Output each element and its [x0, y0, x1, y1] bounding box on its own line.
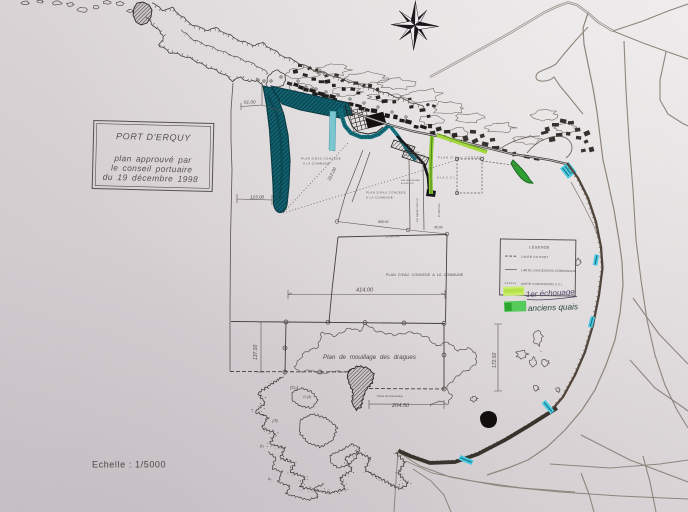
svg-text:LIMITE CONCESSION COMMUNALE: LIMITE CONCESSION COMMUNALE [521, 268, 576, 273]
svg-text:A LA C.C.I.: A LA C.C.I. [437, 176, 456, 180]
svg-text:LEGENDE: LEGENDE [529, 245, 550, 249]
svg-text:(ℛ): (ℛ) [272, 418, 279, 423]
svg-text:PLAN D'EAU CONCEDE A LA C: PLAN D'EAU CONCEDE A LA COMMUNE [386, 273, 464, 277]
svg-text:Pointe de la Heussaye: Pointe de la Heussaye [377, 394, 404, 398]
svg-text:204.50: 204.50 [391, 403, 410, 409]
svg-text:PLAN D'EAU CONCEDE: PLAN D'EAU CONCEDE [301, 157, 341, 161]
svg-text:PORT D'ERQUY: PORT D'ERQUY [116, 131, 191, 143]
svg-text:45.00: 45.00 [434, 226, 443, 230]
svg-text:(G₃): (G₃) [290, 385, 299, 390]
svg-text:A COEF. 120: A COEF. 120 [401, 182, 414, 185]
svg-text:CHENAL: CHENAL [386, 234, 401, 239]
svg-text:123.00: 123.00 [250, 195, 264, 200]
svg-text:β₃: β₃ [259, 443, 264, 448]
svg-text:LIMITE CONCESSION C.C.I: LIMITE CONCESSION C.C.I [521, 282, 563, 287]
svg-text:anciens quais: anciens quais [528, 302, 578, 313]
svg-text:G.(3): G.(3) [303, 395, 311, 399]
svg-text:LIMITE DU PORT: LIMITE DU PORT [521, 255, 548, 259]
svg-text:A LA COMMUNE: A LA COMMUNE [366, 196, 393, 200]
svg-text:414.00: 414.00 [356, 288, 374, 294]
svg-text:Echelle : 1/5000: Echelle : 1/5000 [92, 460, 166, 470]
svg-text:B.M. DE MAREE: B.M. DE MAREE [403, 151, 420, 154]
svg-text:B.M. MAREE COEF 120: B.M. MAREE COEF 120 [416, 197, 419, 222]
svg-text:172.50: 172.50 [492, 352, 498, 368]
svg-text:PLAN D'EAU CONCEDE: PLAN D'EAU CONCEDE [366, 191, 406, 195]
svg-text:COEF. CONVENABLE: COEF. CONVENABLE [403, 154, 426, 157]
svg-text:858.00: 858.00 [378, 220, 388, 224]
svg-text:B.M. DE VIVE EAU: B.M. DE VIVE EAU [401, 179, 420, 182]
svg-text:Plan de mouillage des drag: Plan de mouillage des dragues [323, 354, 416, 361]
svg-text:A LA COMMUNE: A LA COMMUNE [303, 162, 330, 166]
svg-text:137.50: 137.50 [253, 344, 259, 360]
svg-text:61.00: 61.00 [244, 100, 256, 105]
svg-text:CHENAL: CHENAL [437, 202, 441, 217]
